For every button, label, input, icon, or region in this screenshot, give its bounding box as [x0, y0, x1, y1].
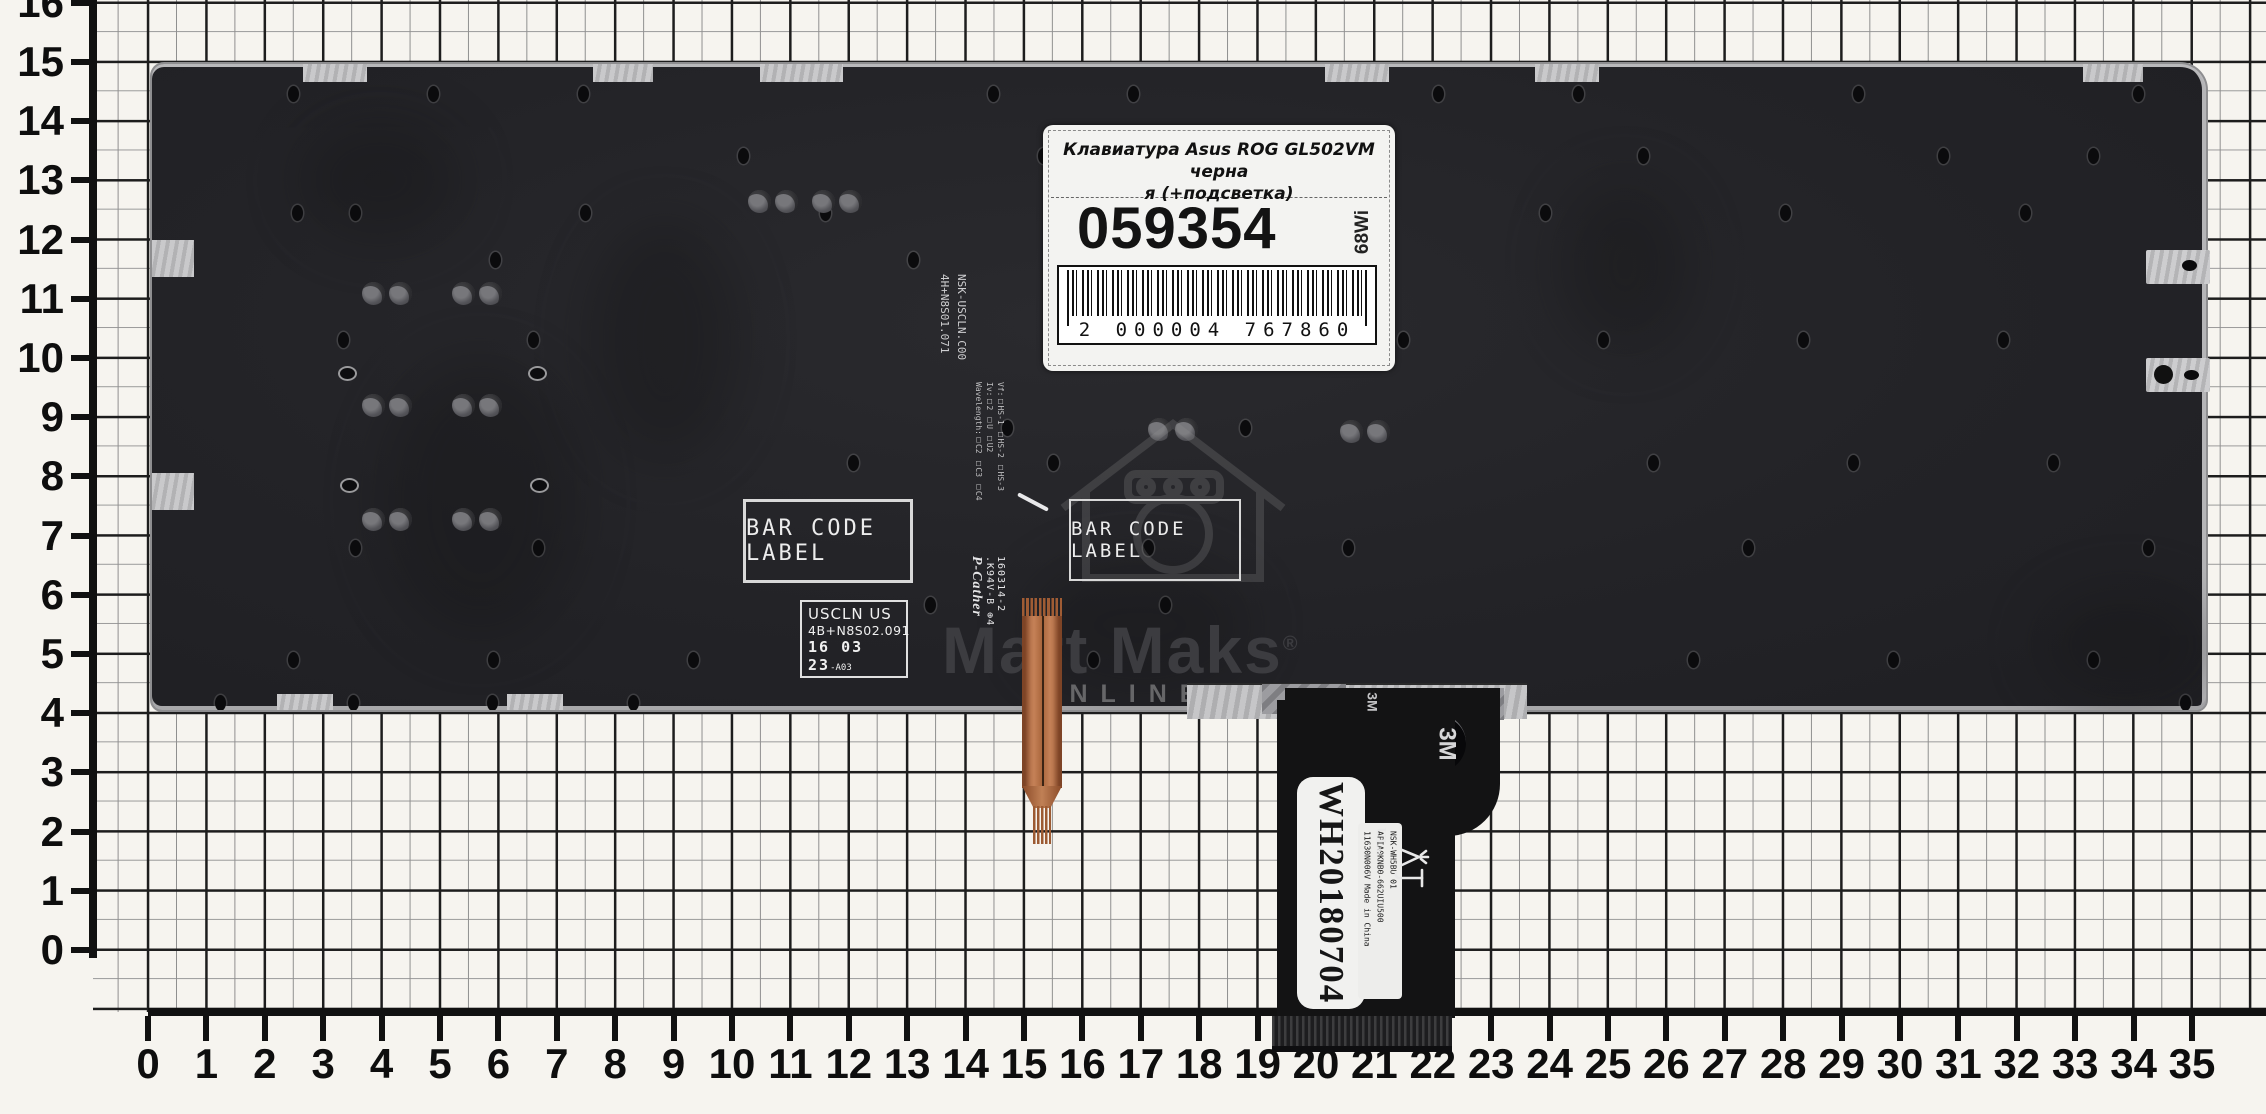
screw-hole — [533, 540, 544, 556]
screw-hole — [1798, 332, 1809, 348]
screw-hole — [1648, 455, 1659, 471]
y-ruler-label: 14 — [0, 97, 64, 145]
led-pad — [775, 190, 798, 213]
screw-hole — [338, 332, 349, 348]
screw-hole — [1998, 332, 2009, 348]
y-ruler-tick — [71, 888, 97, 894]
x-ruler-tick — [1897, 1016, 1903, 1041]
ribbon-connector — [1272, 1016, 1452, 1052]
ribbon-batch-sticker: WH20180704 — [1297, 777, 1365, 1009]
plate-smudge — [2040, 590, 2206, 700]
y-ruler-label: 9 — [0, 393, 64, 441]
x-ruler-tick — [1255, 1016, 1261, 1041]
screw-hole — [1540, 205, 1551, 221]
x-ruler-tick — [1021, 1016, 1027, 1041]
plate-smudge — [300, 120, 460, 240]
horizontal-ruler-axis — [148, 1008, 2266, 1016]
x-ruler-tick — [495, 1016, 501, 1041]
screw-hole — [348, 695, 359, 710]
y-ruler-tick — [71, 355, 97, 361]
screw-hole — [2020, 205, 2031, 221]
bar-code-label-box-2: BAR CODE LABEL — [1069, 499, 1241, 581]
screw-hole — [988, 86, 999, 102]
y-ruler-tick — [71, 710, 97, 716]
x-ruler-tick — [379, 1016, 385, 1041]
rimmed-hole — [530, 478, 549, 493]
x-ruler-tick — [671, 1016, 677, 1041]
side-mounting-tab — [2146, 250, 2210, 284]
led-pad — [362, 394, 385, 417]
x-ruler-tick — [729, 1016, 735, 1041]
y-ruler-label: 10 — [0, 334, 64, 382]
screw-hole — [528, 332, 539, 348]
y-ruler-label: 2 — [0, 808, 64, 856]
x-ruler-tick — [1839, 1016, 1845, 1041]
y-ruler-label: 13 — [0, 156, 64, 204]
screw-hole — [1598, 332, 1609, 348]
screw-hole — [580, 205, 591, 221]
screw-hole — [2088, 148, 2099, 164]
led-pad — [479, 394, 502, 417]
y-ruler-label: 7 — [0, 512, 64, 560]
screw-hole — [2180, 695, 2191, 710]
screw-hole — [848, 455, 859, 471]
x-ruler-tick — [2072, 1016, 2078, 1041]
copper-cable-contacts-top — [1022, 598, 1062, 618]
barcode-bars — [1067, 270, 1367, 316]
left-edge-notch — [152, 240, 194, 277]
led-pad — [362, 508, 385, 531]
x-ruler-tick — [203, 1016, 209, 1041]
rimmed-hole — [338, 366, 357, 381]
led-pad — [389, 282, 412, 305]
x-ruler-tick — [320, 1016, 326, 1041]
x-ruler-tick — [1722, 1016, 1728, 1041]
bar-code-label-box-1: BAR CODE LABEL — [743, 499, 913, 583]
bar-code-label-text-1: BAR CODE LABEL — [746, 516, 910, 566]
y-ruler-tick — [71, 651, 97, 657]
x-ruler-tick — [904, 1016, 910, 1041]
screw-hole — [487, 695, 498, 710]
led-pad — [389, 394, 412, 417]
product-sku: 059354 — [1077, 195, 1277, 262]
screw-hole — [2048, 455, 2059, 471]
screw-hole — [1853, 86, 1864, 102]
top-edge-notch — [760, 64, 843, 82]
led-pad — [452, 508, 475, 531]
led-pad — [1340, 420, 1363, 443]
registered-mark: ® — [1283, 633, 1300, 655]
screw-hole — [490, 252, 501, 268]
screw-hole — [488, 652, 499, 668]
y-ruler-label: 6 — [0, 571, 64, 619]
ul-certification-icon: ULus — [1372, 827, 1389, 855]
x-ruler-tick — [1663, 1016, 1669, 1041]
x-ruler-tick — [554, 1016, 560, 1041]
screw-hole — [688, 652, 699, 668]
led-pad — [839, 190, 862, 213]
screw-hole — [288, 86, 299, 102]
y-ruler-label: 3 — [0, 748, 64, 796]
screw-hole — [2133, 86, 2144, 102]
copper-cable-contacts-bottom — [1033, 806, 1051, 844]
y-ruler-tick — [71, 237, 97, 243]
x-ruler-label: 35 — [2157, 1040, 2227, 1088]
x-ruler-tick — [2189, 1016, 2195, 1041]
top-edge-notch — [593, 64, 653, 82]
x-ruler-tick — [787, 1016, 793, 1041]
x-ruler-tick — [262, 1016, 268, 1041]
x-ruler-tick — [2014, 1016, 2020, 1041]
y-ruler-tick — [71, 177, 97, 183]
barcode-digits: 2 000004 767860 — [1059, 319, 1375, 341]
y-ruler-tick — [71, 769, 97, 775]
plate-smudge — [590, 220, 740, 460]
product-title: Клавиатура Asus ROG GL502VM черна я (+по… — [1051, 139, 1387, 198]
screw-hole — [1160, 597, 1171, 613]
x-ruler-tick — [1955, 1016, 1961, 1041]
led-pad — [812, 190, 835, 213]
screw-hole — [628, 695, 639, 710]
led-pad — [479, 508, 502, 531]
screw-hole — [1573, 86, 1584, 102]
led-pad — [452, 394, 475, 417]
y-ruler-tick — [71, 592, 97, 598]
spec-wavelength: Wavelength:□C2 □C3 □C4 — [973, 382, 984, 501]
shop-product-label: Клавиатура Asus ROG GL502VM черна я (+по… — [1043, 125, 1395, 371]
x-ruler-tick — [1547, 1016, 1553, 1041]
x-ruler-tick — [1079, 1016, 1085, 1041]
top-edge-notch — [2083, 64, 2143, 82]
plate-smudge — [1560, 180, 1690, 350]
product-title-line1: Клавиатура Asus ROG GL502VM черна — [1051, 139, 1387, 183]
spec-iv: Iv:□2 □U □U2 — [984, 382, 995, 501]
product-side-code: 68Wi — [1352, 210, 1374, 254]
y-ruler-tick — [71, 947, 97, 953]
screw-hole — [1128, 86, 1139, 102]
y-ruler-label: 11 — [0, 275, 64, 323]
3m-logo-small: 3M — [1365, 692, 1381, 711]
x-ruler-tick — [612, 1016, 618, 1041]
y-ruler-label: 8 — [0, 452, 64, 500]
bar-code-label-text-2: BAR CODE LABEL — [1071, 518, 1239, 562]
screw-hole — [1848, 455, 1859, 471]
screw-hole — [1398, 332, 1409, 348]
screw-hole — [2143, 540, 2154, 556]
led-pad — [362, 282, 385, 305]
led-pad — [389, 508, 412, 531]
led-pad — [1367, 420, 1390, 443]
y-ruler-label: 5 — [0, 630, 64, 678]
screw-hole — [1343, 540, 1354, 556]
top-edge-notch — [303, 64, 367, 82]
rimmed-hole — [528, 366, 547, 381]
screw-hole — [350, 540, 361, 556]
photo-canvas: 0123456789101112131415161718192021222324… — [0, 0, 2266, 1114]
ribbon-batch-code: WH20180704 — [1311, 782, 1351, 1004]
x-ruler-tick — [1488, 1016, 1494, 1041]
y-ruler-label: 15 — [0, 38, 64, 86]
uscln-line1: USCLN US — [808, 605, 900, 623]
uscln-stamp: 16 03 23-A03 — [808, 638, 900, 674]
tab-hole — [2182, 260, 2197, 271]
y-ruler-label: 12 — [0, 216, 64, 264]
screw-hole — [1888, 652, 1899, 668]
3m-logo-large: 3M — [1433, 727, 1461, 760]
y-ruler-tick — [71, 118, 97, 124]
x-ruler-tick — [1605, 1016, 1611, 1041]
screw-hole — [288, 652, 299, 668]
screw-hole — [1938, 148, 1949, 164]
copper-flex-cable — [1022, 616, 1062, 788]
tab-hole — [2154, 365, 2173, 384]
watermark-brand: Mart Maks® — [942, 612, 1300, 688]
uscln-line2: 4B+N8S02.091 — [808, 623, 900, 638]
led-pad — [748, 190, 771, 213]
screw-hole — [215, 695, 226, 710]
x-ruler-tick — [1138, 1016, 1144, 1041]
x-ruler-tick — [963, 1016, 969, 1041]
y-ruler-label: 4 — [0, 689, 64, 737]
screw-hole — [908, 252, 919, 268]
y-ruler-tick — [71, 0, 97, 6]
rimmed-hole — [340, 478, 359, 493]
screw-hole — [1780, 205, 1791, 221]
kanji-lamp-icon — [1390, 846, 1434, 890]
screw-hole — [1743, 540, 1754, 556]
led-pad — [452, 282, 475, 305]
screw-hole — [1433, 86, 1444, 102]
product-barcode: 2 000004 767860 — [1057, 265, 1377, 345]
x-ruler-tick — [145, 1016, 151, 1041]
x-ruler-tick — [846, 1016, 852, 1041]
plate-spec-vertical: Vf:□HS-1 □HS-2 □HS-3 Iv:□2 □U □U2 Wavele… — [973, 382, 1006, 501]
y-ruler-label: 1 — [0, 867, 64, 915]
part-number-line2: 4H+N8S01.071 — [936, 274, 953, 360]
led-pad — [479, 282, 502, 305]
part-number-line1: NSK-USCLN.C00 — [953, 274, 970, 360]
spec-vf: Vf:□HS-1 □HS-2 □HS-3 — [995, 382, 1006, 501]
screw-hole — [428, 86, 439, 102]
y-ruler-tick — [71, 414, 97, 420]
top-edge-notch — [1325, 64, 1389, 82]
screw-hole — [578, 86, 589, 102]
bottom-edge-notch — [507, 694, 563, 710]
y-ruler-tick — [71, 59, 97, 65]
tab-hole — [2184, 370, 2199, 380]
y-ruler-tick — [71, 296, 97, 302]
x-ruler-tick — [1780, 1016, 1786, 1041]
uscln-label: USCLN US 4B+N8S02.091 16 03 23-A03 — [800, 600, 908, 678]
bottom-edge-notch — [277, 694, 333, 710]
y-ruler-label: 0 — [0, 926, 64, 974]
y-ruler-tick — [71, 533, 97, 539]
side-mounting-tab — [2146, 358, 2210, 392]
x-ruler-tick — [437, 1016, 443, 1041]
screw-hole — [1638, 148, 1649, 164]
y-ruler-tick — [71, 473, 97, 479]
y-ruler-label: 16 — [0, 0, 64, 27]
plate-part-number-vertical: NSK-USCLN.C00 4H+N8S01.071 — [936, 274, 970, 360]
screw-hole — [738, 148, 749, 164]
x-ruler-tick — [1196, 1016, 1202, 1041]
x-ruler-tick — [2131, 1016, 2137, 1041]
screw-hole — [2088, 652, 2099, 668]
left-edge-notch — [152, 473, 194, 510]
screw-hole — [1688, 652, 1699, 668]
screw-hole — [350, 205, 361, 221]
screw-hole — [292, 205, 303, 221]
screw-hole — [925, 597, 936, 613]
top-edge-notch — [1535, 64, 1599, 82]
y-ruler-tick — [71, 829, 97, 835]
